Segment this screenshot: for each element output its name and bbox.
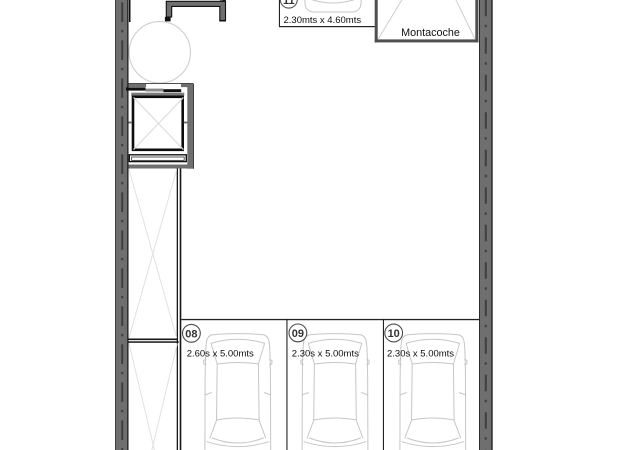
svg-text:Montacoche: Montacoche	[401, 27, 460, 39]
svg-text:10: 10	[388, 328, 400, 340]
svg-text:2.30mts x 4.60mts: 2.30mts x 4.60mts	[283, 15, 361, 26]
svg-text:09: 09	[292, 328, 304, 340]
svg-text:2.60s x 5.00mts: 2.60s x 5.00mts	[187, 349, 254, 360]
svg-text:11: 11	[283, 0, 295, 7]
svg-text:2.30s x 5.00mts: 2.30s x 5.00mts	[292, 349, 359, 360]
svg-text:2.30s x 5.00mts: 2.30s x 5.00mts	[387, 349, 454, 360]
svg-text:08: 08	[185, 328, 197, 340]
